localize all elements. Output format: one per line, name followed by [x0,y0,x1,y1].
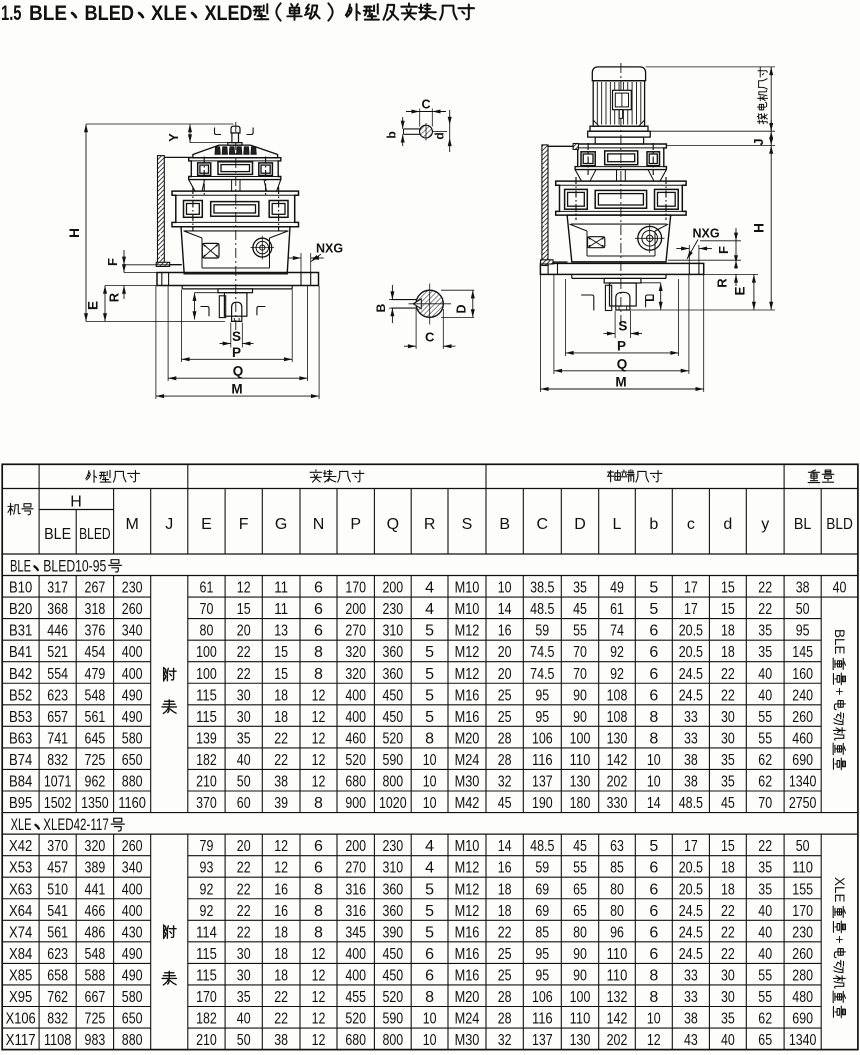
svg-text:18: 18 [274,709,288,726]
svg-text:155: 155 [792,881,813,898]
svg-text:12: 12 [312,1011,326,1028]
svg-text:M24: M24 [455,1011,480,1028]
svg-text:15: 15 [721,601,735,618]
svg-text:400: 400 [122,644,143,661]
svg-text:30: 30 [721,967,735,984]
svg-text:18: 18 [498,881,512,898]
svg-text:12: 12 [312,752,326,769]
svg-text:588: 588 [85,967,106,984]
svg-text:X117: X117 [6,1032,36,1049]
svg-text:S: S [462,516,473,533]
svg-text:61: 61 [610,601,624,618]
svg-text:30: 30 [237,687,251,704]
svg-text:115: 115 [196,709,217,726]
svg-text:F: F [716,246,731,254]
svg-text:22: 22 [758,580,772,597]
svg-text:142: 142 [607,1011,628,1028]
svg-text:110: 110 [607,946,628,963]
svg-text:80: 80 [610,881,624,898]
svg-text:230: 230 [792,924,813,941]
svg-text:B52: B52 [9,687,32,704]
svg-text:590: 590 [382,752,403,769]
svg-text:E: E [86,301,101,310]
svg-text:6: 6 [425,946,434,963]
svg-text:10: 10 [423,1011,437,1028]
svg-text:22: 22 [237,666,251,683]
svg-text:B63: B63 [9,730,32,747]
svg-text:BLED: BLED [79,526,111,543]
svg-text:10: 10 [423,752,437,769]
svg-text:520: 520 [345,752,366,769]
svg-text:457: 457 [47,860,68,877]
svg-text:110: 110 [570,752,591,769]
svg-text:110: 110 [607,967,628,984]
svg-text:106: 106 [532,730,553,747]
svg-text:M12: M12 [455,860,480,877]
svg-text:22: 22 [498,924,512,941]
svg-text:580: 580 [122,730,143,747]
svg-text:D: D [455,304,469,313]
svg-text:H: H [67,228,82,238]
svg-text:8: 8 [425,989,434,1006]
svg-text:69: 69 [535,881,549,898]
svg-text:22: 22 [758,601,772,618]
svg-text:61: 61 [200,580,214,597]
svg-text:M30: M30 [455,1032,480,1049]
svg-text:142: 142 [607,752,628,769]
svg-text:880: 880 [122,1032,143,1049]
svg-text:38: 38 [274,774,288,791]
svg-text:260: 260 [792,946,813,963]
svg-text:548: 548 [85,946,106,963]
svg-text:22: 22 [274,730,288,747]
svg-text:20: 20 [498,666,512,683]
svg-text:22: 22 [274,752,288,769]
svg-text:M10: M10 [455,601,480,618]
svg-text:10: 10 [423,795,437,812]
svg-text:25: 25 [498,709,512,726]
svg-text:267: 267 [85,580,106,597]
svg-text:X95: X95 [9,989,32,1006]
svg-text:14: 14 [498,838,512,855]
svg-text:J: J [752,138,766,145]
svg-text:59: 59 [535,860,549,877]
svg-text:16: 16 [498,860,512,877]
svg-text:49: 49 [610,580,624,597]
svg-text:8: 8 [649,967,658,984]
svg-text:6: 6 [649,903,658,920]
svg-text:486: 486 [85,924,106,941]
svg-text:XLE: XLE [832,877,847,903]
svg-text:983: 983 [85,1032,106,1049]
svg-text:85: 85 [535,924,549,941]
svg-text:40: 40 [758,903,772,920]
svg-text:132: 132 [607,989,628,1006]
svg-text:690: 690 [792,1011,813,1028]
svg-text:8: 8 [314,924,323,941]
svg-text:317: 317 [47,580,68,597]
svg-text:130: 130 [570,1032,591,1049]
svg-text:55: 55 [758,730,772,747]
svg-text:90: 90 [573,709,587,726]
svg-text:M: M [615,375,626,390]
svg-text:725: 725 [85,752,106,769]
svg-text:20: 20 [237,838,251,855]
svg-text:30: 30 [237,946,251,963]
svg-text:B41: B41 [9,644,32,661]
svg-text:725: 725 [85,1011,106,1028]
svg-text:18: 18 [274,967,288,984]
svg-text:S: S [232,329,241,344]
svg-text:X53: X53 [9,860,32,877]
svg-text:35: 35 [237,730,251,747]
svg-text:8: 8 [314,666,323,683]
svg-text:10: 10 [423,774,437,791]
svg-text:Q: Q [387,516,399,533]
svg-text:360: 360 [382,644,403,661]
svg-text:X63: X63 [9,881,32,898]
svg-text:B42: B42 [9,666,32,683]
svg-text:15: 15 [721,580,735,597]
svg-text:4: 4 [425,860,434,877]
svg-text:E: E [201,516,212,533]
svg-text:R: R [107,292,122,302]
svg-text:60: 60 [237,795,251,812]
svg-text:1502: 1502 [44,795,72,812]
svg-text:762: 762 [47,989,68,1006]
svg-text:116: 116 [532,1011,553,1028]
svg-text:115: 115 [196,687,217,704]
svg-text:108: 108 [607,709,628,726]
svg-text:M: M [231,382,242,397]
svg-text:B: B [374,303,388,312]
svg-text:360: 360 [382,881,403,898]
svg-text:28: 28 [498,1011,512,1028]
svg-text:8: 8 [649,989,658,1006]
svg-text:260: 260 [122,601,143,618]
svg-text:8: 8 [649,709,658,726]
svg-text:20: 20 [498,644,512,661]
svg-text:520: 520 [382,730,403,747]
svg-text:M12: M12 [455,623,480,640]
svg-text:L: L [613,516,622,533]
svg-text:30: 30 [237,967,251,984]
svg-text:182: 182 [196,752,217,769]
svg-text:92: 92 [200,903,214,920]
svg-text:80: 80 [200,623,214,640]
svg-text:15: 15 [274,644,288,661]
svg-text:210: 210 [196,1032,217,1049]
svg-text:5: 5 [649,580,658,597]
svg-text:N: N [313,516,325,533]
svg-text:40: 40 [758,946,772,963]
svg-text:B84: B84 [9,774,32,791]
svg-text:X106: X106 [6,1011,36,1028]
svg-text:318: 318 [85,601,106,618]
svg-text:8: 8 [314,644,323,661]
svg-text:55: 55 [573,860,587,877]
svg-text:74.5: 74.5 [530,644,554,661]
svg-text:5: 5 [649,601,658,618]
svg-text:18: 18 [721,860,735,877]
svg-text:400: 400 [345,967,366,984]
svg-text:45: 45 [573,838,587,855]
svg-text:33: 33 [684,730,698,747]
svg-text:C: C [537,516,549,533]
svg-text:55: 55 [758,967,772,984]
svg-text:490: 490 [122,946,143,963]
svg-text:230: 230 [122,580,143,597]
svg-text:6: 6 [649,924,658,941]
svg-text:1071: 1071 [44,774,72,791]
svg-text:623: 623 [47,946,68,963]
svg-text:210: 210 [196,774,217,791]
svg-text:2750: 2750 [789,795,817,812]
svg-text:441: 441 [85,881,106,898]
svg-text:12: 12 [647,1032,661,1049]
svg-text:690: 690 [792,752,813,769]
svg-text:658: 658 [47,967,68,984]
svg-text:M16: M16 [455,687,480,704]
svg-text:22: 22 [237,903,251,920]
svg-text:M42: M42 [455,795,480,812]
svg-text:55: 55 [758,709,772,726]
svg-text:30: 30 [237,709,251,726]
svg-text:657: 657 [47,709,68,726]
svg-text:20: 20 [237,623,251,640]
svg-text:F: F [105,258,120,266]
svg-text:22: 22 [721,666,735,683]
svg-text:70: 70 [573,666,587,683]
svg-text:40: 40 [833,580,847,597]
svg-text:38: 38 [684,752,698,769]
svg-text:BLE: BLE [29,2,67,25]
svg-text:B20: B20 [9,601,32,618]
svg-text:460: 460 [345,730,366,747]
svg-text:6: 6 [314,860,323,877]
svg-text:479: 479 [85,666,106,683]
svg-text:115: 115 [196,967,217,984]
svg-text:48.5: 48.5 [530,838,554,855]
svg-text:NXG: NXG [316,242,343,256]
svg-text:330: 330 [607,795,628,812]
svg-text:24.5: 24.5 [679,924,703,941]
svg-text:400: 400 [345,946,366,963]
svg-text:345: 345 [345,924,366,941]
svg-text:b: b [649,516,658,533]
svg-text:832: 832 [47,1011,68,1028]
svg-text:480: 480 [792,989,813,1006]
svg-text:B: B [499,516,510,533]
svg-text:B74: B74 [9,752,32,769]
svg-text:430: 430 [122,924,143,941]
svg-text:400: 400 [122,881,143,898]
svg-text:376: 376 [85,623,106,640]
svg-text:S: S [618,319,627,334]
svg-text:130: 130 [607,730,628,747]
svg-text:6: 6 [649,666,658,683]
svg-text:8: 8 [649,730,658,747]
svg-text:230: 230 [382,601,403,618]
svg-text:200: 200 [345,601,366,618]
svg-text:M30: M30 [455,774,480,791]
svg-text:28: 28 [498,989,512,1006]
svg-text:BLED10-95: BLED10-95 [43,557,106,575]
svg-text:561: 561 [47,924,68,941]
svg-text:95: 95 [535,967,549,984]
svg-text:38: 38 [684,1011,698,1028]
svg-text:450: 450 [382,946,403,963]
svg-text:62: 62 [758,752,772,769]
svg-text:667: 667 [85,989,106,1006]
svg-text:12: 12 [312,687,326,704]
svg-text:33: 33 [684,709,698,726]
svg-text:14: 14 [498,601,512,618]
svg-text:554: 554 [47,666,68,683]
svg-text:24.5: 24.5 [679,946,703,963]
svg-text:6: 6 [314,623,323,640]
svg-text:450: 450 [382,709,403,726]
svg-text:X74: X74 [9,924,32,941]
svg-text:202: 202 [607,1032,628,1049]
svg-text:35: 35 [758,881,772,898]
svg-text:95: 95 [796,623,810,640]
svg-text:5: 5 [425,881,434,898]
svg-text:24.5: 24.5 [679,903,703,920]
svg-text:6: 6 [649,687,658,704]
svg-text:110: 110 [570,1011,591,1028]
svg-text:XLED42-117: XLED42-117 [43,816,109,834]
svg-text:38: 38 [796,580,810,597]
svg-text:6: 6 [649,623,658,640]
svg-text:6: 6 [314,601,323,618]
svg-text:79: 79 [200,838,214,855]
svg-text:160: 160 [792,666,813,683]
svg-text:55: 55 [573,623,587,640]
svg-text:5: 5 [425,623,434,640]
svg-text:50: 50 [237,774,251,791]
svg-text:520: 520 [382,989,403,1006]
svg-text:85: 85 [610,860,624,877]
svg-text:80: 80 [610,903,624,920]
svg-text:20.5: 20.5 [679,860,703,877]
svg-text:15: 15 [274,666,288,683]
svg-text:18: 18 [274,687,288,704]
svg-text:1108: 1108 [44,1032,72,1049]
svg-text:65: 65 [758,1032,772,1049]
svg-text:30: 30 [721,709,735,726]
svg-text:Q: Q [233,364,244,379]
svg-text:35: 35 [237,989,251,1006]
svg-text:+: + [832,936,847,944]
svg-text:40: 40 [758,924,772,941]
svg-text:63: 63 [610,838,624,855]
svg-text:M16: M16 [455,967,480,984]
svg-text:137: 137 [532,1032,553,1049]
svg-text:35: 35 [758,644,772,661]
svg-text:106: 106 [532,989,553,1006]
svg-text:1.5: 1.5 [1,2,22,25]
svg-text:11: 11 [274,580,288,597]
svg-text:8: 8 [314,795,323,812]
svg-text:70: 70 [200,601,214,618]
svg-text:580: 580 [122,989,143,1006]
svg-text:800: 800 [382,774,403,791]
svg-text:70: 70 [758,795,772,812]
svg-text:40: 40 [237,752,251,769]
svg-text:M12: M12 [455,903,480,920]
svg-text:4: 4 [425,838,434,855]
svg-text:6: 6 [649,946,658,963]
svg-text:40: 40 [721,1032,735,1049]
svg-text:X64: X64 [9,903,32,920]
svg-text:1160: 1160 [118,795,146,812]
svg-text:320: 320 [345,666,366,683]
svg-text:320: 320 [345,644,366,661]
svg-text:6: 6 [649,881,658,898]
svg-text:320: 320 [85,838,106,855]
svg-text:90: 90 [573,946,587,963]
svg-text:43: 43 [684,1032,698,1049]
svg-text:645: 645 [85,730,106,747]
svg-text:M20: M20 [455,989,480,1006]
svg-text:E: E [733,286,748,295]
svg-text:74: 74 [610,623,624,640]
svg-text:170: 170 [345,580,366,597]
svg-text:240: 240 [792,687,813,704]
svg-text:962: 962 [85,774,106,791]
svg-text:Q: Q [617,357,628,372]
svg-text:832: 832 [47,752,68,769]
svg-text:446: 446 [47,623,68,640]
svg-text:74.5: 74.5 [530,666,554,683]
svg-text:5: 5 [649,838,658,855]
svg-text:XLED: XLED [205,2,253,25]
svg-text:1340: 1340 [789,1032,817,1049]
svg-text:35: 35 [721,752,735,769]
svg-text:360: 360 [382,903,403,920]
svg-text:650: 650 [122,752,143,769]
svg-text:561: 561 [85,709,106,726]
svg-text:17: 17 [684,580,698,597]
svg-text:800: 800 [382,1032,403,1049]
svg-text:32: 32 [498,1032,512,1049]
svg-text:92: 92 [610,644,624,661]
svg-text:340: 340 [122,623,143,640]
svg-text:18: 18 [274,924,288,941]
svg-text:741: 741 [47,730,68,747]
svg-text:400: 400 [345,709,366,726]
svg-text:59: 59 [535,623,549,640]
svg-text:P: P [232,345,241,360]
svg-text:69: 69 [535,903,549,920]
svg-text:5: 5 [425,903,434,920]
svg-text:8: 8 [314,903,323,920]
svg-text:BLE: BLE [44,526,71,543]
svg-text:139: 139 [196,730,217,747]
svg-text:95: 95 [535,709,549,726]
svg-text:130: 130 [570,774,591,791]
svg-text:190: 190 [532,795,553,812]
svg-text:400: 400 [345,687,366,704]
svg-text:y: y [761,516,769,533]
svg-text:1350: 1350 [81,795,109,812]
svg-text:20.5: 20.5 [679,881,703,898]
svg-text:33: 33 [684,967,698,984]
svg-text:490: 490 [122,709,143,726]
svg-text:623: 623 [47,687,68,704]
svg-text:90: 90 [573,967,587,984]
